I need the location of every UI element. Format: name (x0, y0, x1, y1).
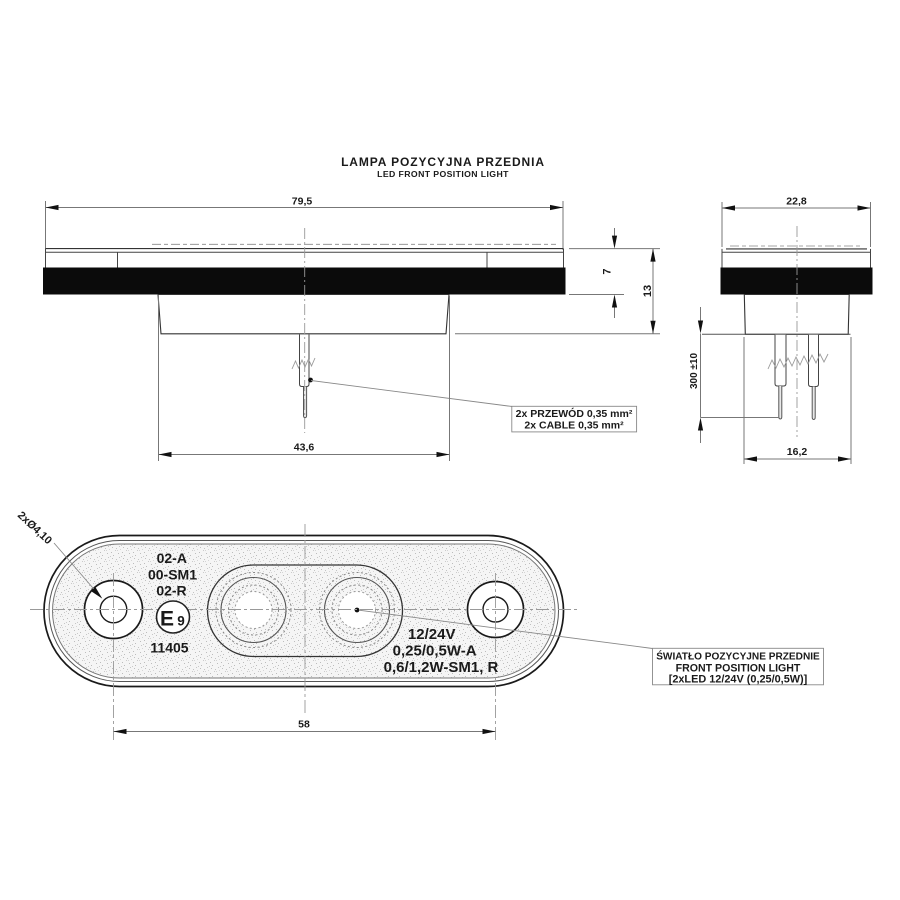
svg-text:00-SM1: 00-SM1 (148, 567, 197, 583)
svg-text:16,2: 16,2 (787, 446, 808, 458)
svg-text:[2xLED 12/24V (0,25/0,5W)]: [2xLED 12/24V (0,25/0,5W)] (669, 674, 808, 686)
svg-text:9: 9 (177, 614, 185, 629)
svg-text:79,5: 79,5 (292, 196, 313, 208)
svg-text:58: 58 (298, 719, 310, 731)
svg-text:2x PRZEWÓD 0,35 mm²: 2x PRZEWÓD 0,35 mm² (516, 407, 633, 420)
svg-text:13: 13 (642, 285, 654, 297)
svg-text:12/24V: 12/24V (408, 626, 456, 643)
svg-text:02-A: 02-A (157, 550, 187, 566)
svg-text:LAMPA POZYCYJNA PRZEDNIA: LAMPA POZYCYJNA PRZEDNIA (341, 155, 545, 169)
svg-text:2x CABLE 0,35 mm²: 2x CABLE 0,35 mm² (524, 419, 624, 431)
svg-text:FRONT POSITION LIGHT: FRONT POSITION LIGHT (676, 662, 801, 674)
svg-text:300 ±10: 300 ±10 (689, 353, 700, 390)
svg-text:ŚWIATŁO POZYCYJNE PRZEDNIE: ŚWIATŁO POZYCYJNE PRZEDNIE (656, 650, 820, 663)
svg-text:E: E (160, 608, 174, 631)
svg-text:22,8: 22,8 (786, 196, 807, 208)
svg-text:0,6/1,2W-SM1, R: 0,6/1,2W-SM1, R (384, 659, 499, 676)
svg-text:LED FRONT POSITION LIGHT: LED FRONT POSITION LIGHT (377, 169, 509, 179)
svg-text:43,6: 43,6 (294, 442, 315, 454)
svg-text:7: 7 (602, 268, 614, 274)
svg-text:02-R: 02-R (156, 583, 186, 599)
svg-text:11405: 11405 (150, 640, 188, 656)
svg-text:0,25/0,5W-A: 0,25/0,5W-A (393, 643, 477, 660)
